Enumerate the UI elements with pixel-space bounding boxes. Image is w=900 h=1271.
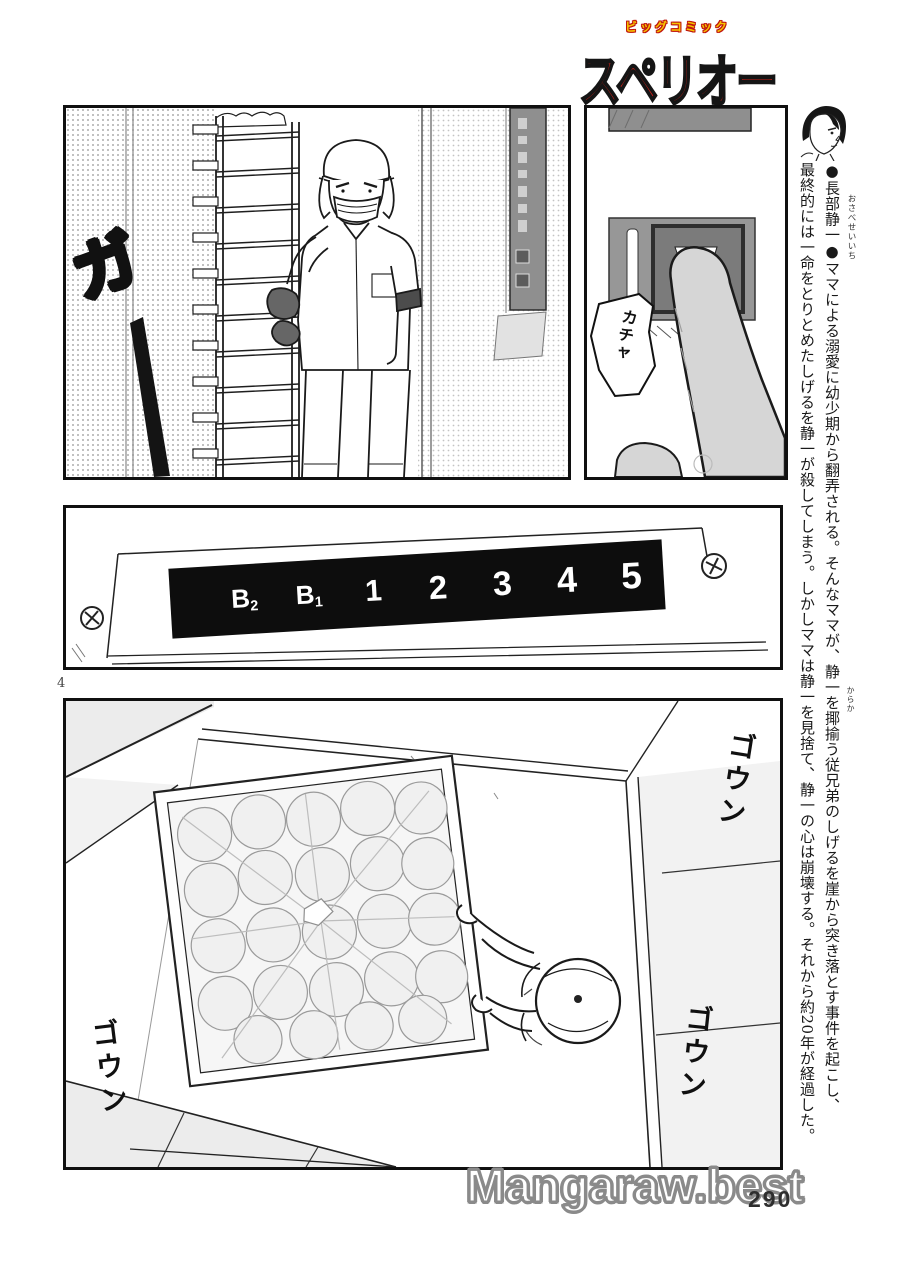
pressing-finger xyxy=(670,247,785,477)
recap-column-2: 最終的には一命をとりとめたしげるを静一が殺してしまう。しかしママは静一を見捨て、… xyxy=(794,162,819,1172)
manga-page: ビッグコミック スペリオール ●長部静一●ママによる溺愛に幼少期から翻弄される。… xyxy=(0,0,900,1271)
character-portrait-icon xyxy=(797,103,849,161)
floor-label-1: 1 xyxy=(340,573,406,611)
furigana-name: おさべせいいち xyxy=(845,194,857,261)
floor-label-b1: B1 xyxy=(276,578,342,613)
magazine-logo-small: ビッグコミック xyxy=(560,18,795,35)
panel-overhead-elevator: ゴウン ゴウン ゴウン xyxy=(63,698,783,1170)
printed-page-number: 290 xyxy=(748,1186,792,1213)
door-lintel xyxy=(609,108,751,131)
panel-button-press: カチャ xyxy=(584,105,788,480)
screw-right xyxy=(702,554,726,578)
panel-page-label: 4 xyxy=(57,676,65,691)
floor-label-4: 4 xyxy=(533,557,600,603)
story-recap-text: ●長部静一●ママによる溺愛に幼少期から翻弄される。そんなママが、静一を揶揄う従兄… xyxy=(794,162,844,1172)
buns xyxy=(174,772,476,1072)
panel-worker-rack: ガ xyxy=(63,105,571,480)
panel-floor-indicator: B2 B1 1 2 3 4 5 xyxy=(63,505,783,670)
screw-left xyxy=(81,607,103,629)
furigana-karakau: からか xyxy=(845,686,856,713)
floor-label-2: 2 xyxy=(405,567,472,609)
panel2-art xyxy=(587,108,785,477)
recap-column-1: ●長部静一●ママによる溺愛に幼少期から翻弄される。そんなママが、静一を揶揄う従兄… xyxy=(819,162,844,1172)
floor-label-3: 3 xyxy=(469,563,536,606)
worker-figure xyxy=(267,140,421,477)
bread-cart xyxy=(154,756,488,1086)
thumb xyxy=(615,443,682,477)
floor-label-b2: B2 xyxy=(211,582,277,617)
floor-label-5: 5 xyxy=(598,553,665,599)
